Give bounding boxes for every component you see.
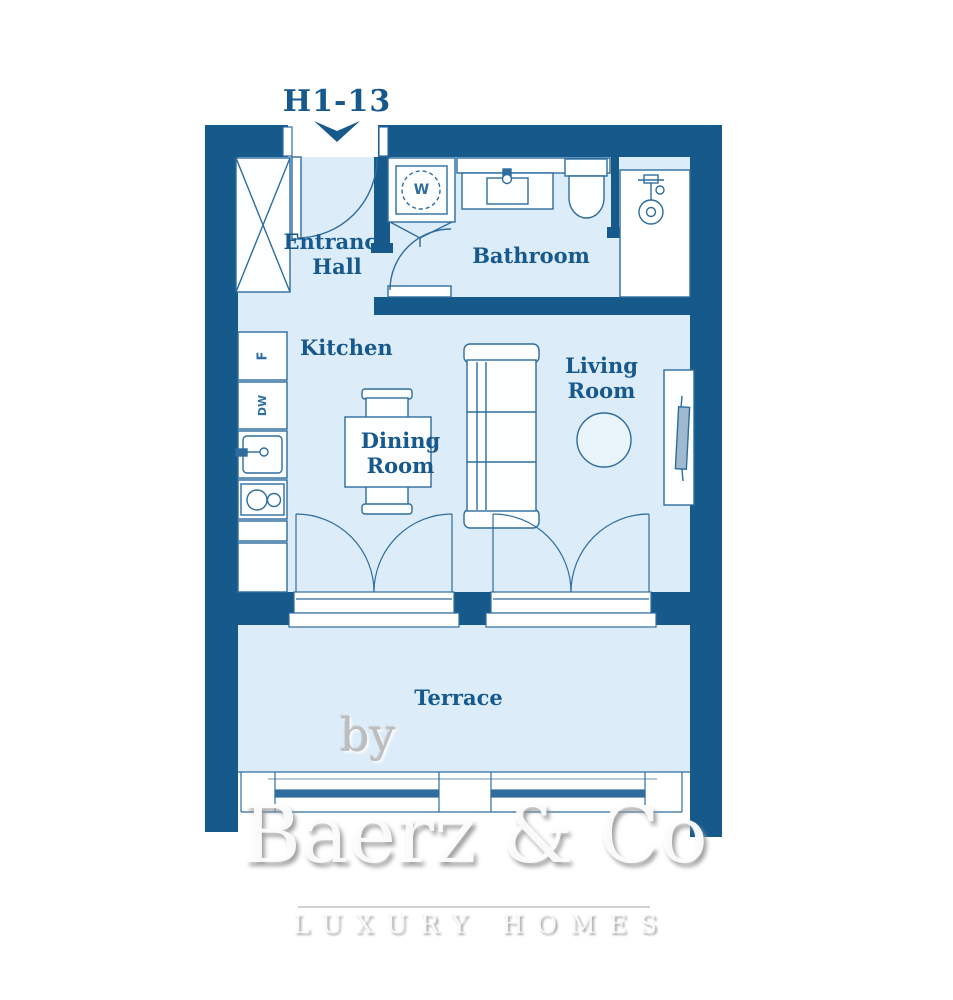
watermark-by: by bbox=[340, 708, 395, 762]
entrance-hall-line2: Hall bbox=[277, 255, 397, 280]
fridge-letter: F bbox=[239, 332, 287, 381]
living-room-line1: Living bbox=[549, 354, 654, 379]
living-room-label: Living Room bbox=[549, 354, 654, 404]
unit-label: H1-13 bbox=[272, 85, 402, 120]
dining-room-line1: Dining bbox=[348, 429, 453, 454]
sofa-icon bbox=[464, 344, 539, 528]
living-room-line2: Room bbox=[549, 379, 654, 404]
dining-room-label: Dining Room bbox=[348, 429, 453, 479]
floorplan-page: H1-13 Entrance Hall Bathroom Kitchen Din… bbox=[0, 0, 953, 1000]
toilet-icon bbox=[569, 176, 604, 218]
terrace-label: Terrace bbox=[396, 686, 521, 710]
watermark-tagline: LUXURY HOMES bbox=[225, 910, 725, 939]
watermark-brand: Baerz & Co bbox=[225, 788, 725, 881]
shower-area bbox=[620, 170, 690, 297]
tv-icon bbox=[675, 407, 689, 469]
watermark-divider bbox=[298, 906, 650, 908]
bathroom-label: Bathroom bbox=[466, 244, 596, 268]
down-arrow-icon bbox=[314, 121, 360, 142]
coffee-table-icon bbox=[577, 413, 631, 467]
toilet-tank bbox=[565, 159, 607, 176]
dishwasher-letter: DW bbox=[239, 381, 286, 430]
kitchen-sink-icon bbox=[243, 436, 282, 473]
dining-room-line2: Room bbox=[348, 454, 453, 479]
entrance-hall-label: Entrance Hall bbox=[277, 230, 397, 280]
kitchen-label: Kitchen bbox=[300, 336, 410, 360]
entrance-hall-line1: Entrance bbox=[277, 230, 397, 255]
washing-machine-letter: W bbox=[396, 166, 447, 214]
tv-unit bbox=[664, 370, 694, 505]
bathroom-fixtures bbox=[457, 158, 610, 218]
